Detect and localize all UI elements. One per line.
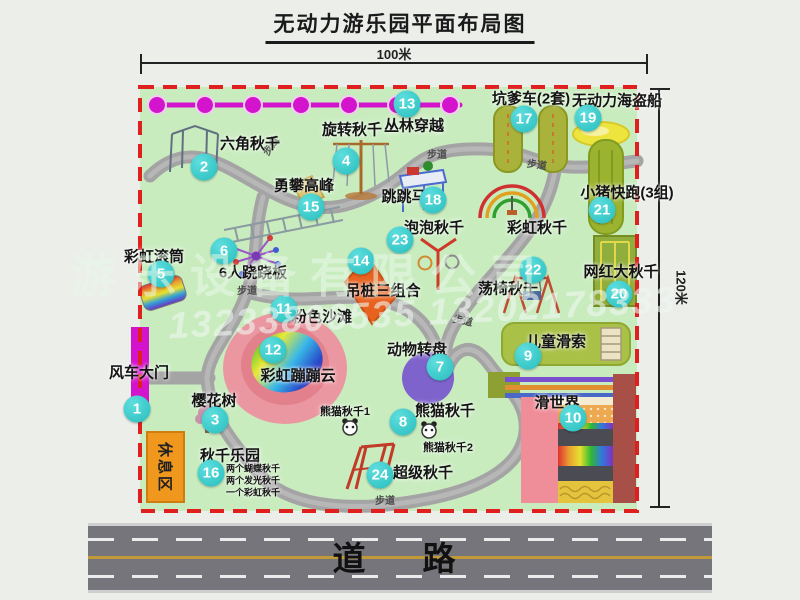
attraction-label-hexagon-swing: 六角秋千 [220, 133, 280, 154]
badge-14: 14 [348, 248, 375, 275]
badge-6: 6 [211, 238, 238, 265]
attraction-label-climbing-peak: 勇攀高峰 [274, 175, 334, 196]
path-label: 步道 [375, 492, 395, 507]
height-dimension-line: 120米 [658, 88, 660, 508]
badge-11: 11 [271, 296, 298, 323]
badge-8: 8 [390, 409, 417, 436]
badge-17: 17 [511, 106, 538, 133]
attraction-label-windmill-gate: 风车大门 [109, 362, 169, 383]
badge-22: 22 [520, 257, 547, 284]
swing-park-note-3: 一个彩虹秋千 [226, 486, 280, 499]
attraction-label-jungle-crossing: 丛林穿越 [384, 115, 444, 136]
badge-15: 15 [298, 194, 325, 221]
badge-10: 10 [560, 405, 587, 432]
badge-4: 4 [333, 148, 360, 175]
attraction-label-big-swing: 网红大秋千 [583, 261, 658, 282]
attraction-label-seesaw: 6人跷跷板 [219, 262, 287, 283]
badge-12: 12 [260, 337, 287, 364]
attraction-label-pink-beach: 粉色沙滩 [292, 306, 352, 327]
attraction-label-bounce-cloud: 彩虹蹦蹦云 [260, 365, 335, 386]
badge-19: 19 [575, 105, 602, 132]
badge-16: 16 [198, 460, 225, 487]
badge-23: 23 [387, 227, 414, 254]
attraction-label-hanging-pile-combo: 吊桩三组合 [345, 280, 420, 301]
park-layout-map: 无动力游乐园平面布局图 [0, 0, 800, 600]
rest-area: 休息区 [146, 431, 185, 503]
badge-7: 7 [427, 354, 454, 381]
attraction-label-rotating-swing: 旋转秋千 [322, 119, 382, 140]
path-label: 步道 [526, 155, 548, 173]
attraction-label-pit-daddy-car: 坑爹车(2套) [492, 88, 570, 109]
road-label: 道 路 [333, 532, 468, 580]
attraction-label-bubble-swing: 泡泡秋千 [404, 217, 464, 238]
badge-5: 5 [148, 261, 175, 288]
attraction-label-super-swing: 超级秋千 [393, 462, 453, 483]
badge-2: 2 [191, 154, 218, 181]
badge-21: 21 [589, 197, 616, 224]
panda-swing-1-label: 熊猫秋千1 [320, 403, 370, 419]
attraction-label-rainbow-swing: 彩虹秋千 [507, 217, 567, 238]
width-dimension-line: 100米 [140, 62, 648, 64]
badge-13: 13 [394, 91, 421, 118]
badge-1: 1 [124, 396, 151, 423]
badge-20: 20 [606, 281, 633, 308]
rest-area-label: 休息区 [155, 441, 176, 492]
width-dimension-label: 100米 [377, 44, 412, 63]
badge-3: 3 [202, 407, 229, 434]
panda-swing-2-label: 熊猫秋千2 [423, 439, 473, 455]
attraction-label-panda-swing: 熊猫秋千 [415, 400, 475, 421]
badge-9: 9 [515, 343, 542, 370]
badge-18: 18 [420, 187, 447, 214]
road: 道 路 [88, 523, 712, 593]
height-dimension-label: 120米 [673, 268, 692, 308]
path-label: 步道 [237, 282, 257, 297]
badge-24: 24 [367, 462, 394, 489]
path-label: 步道 [427, 146, 447, 161]
page-title: 无动力游乐园平面布局图 [266, 8, 535, 44]
